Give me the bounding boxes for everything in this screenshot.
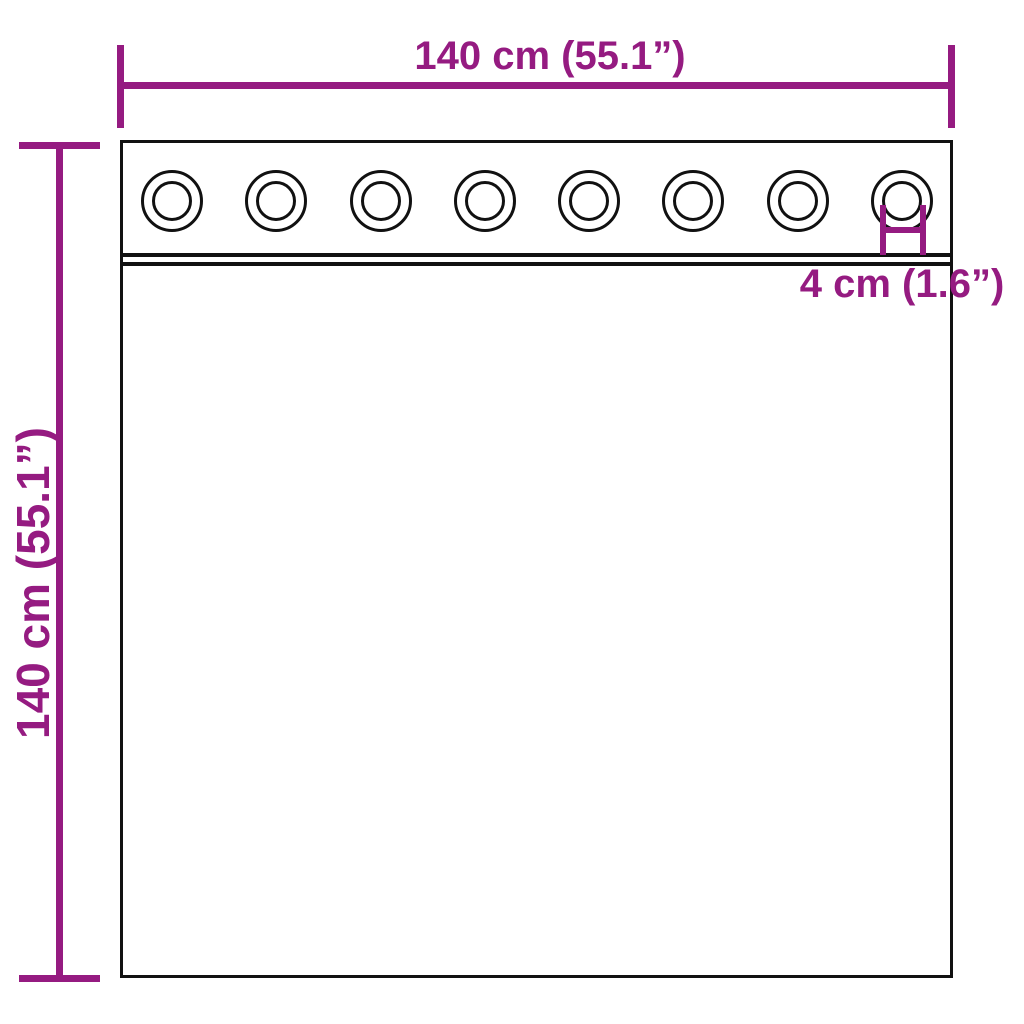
dimension-diagram: 140 cm (55.1”) 140 cm (55.1”) 4 cm (1.6”… xyxy=(0,0,1024,1024)
eyelet-hole xyxy=(882,181,922,221)
eyelet-ring xyxy=(767,170,829,232)
eyelet-ring xyxy=(454,170,516,232)
height-dimension-tick-top xyxy=(19,142,100,149)
eyelet-ring xyxy=(350,170,412,232)
width-dimension-tick-left xyxy=(117,45,124,128)
eyelet-hole xyxy=(152,181,192,221)
width-dimension-line xyxy=(120,82,953,89)
eyelet-ring xyxy=(662,170,724,232)
eyelet-hole xyxy=(778,181,818,221)
eyelet-hole xyxy=(569,181,609,221)
width-dimension-label: 140 cm (55.1”) xyxy=(414,36,685,76)
eyelet-hole xyxy=(256,181,296,221)
eyelet-measure-crossbar xyxy=(880,227,926,233)
width-dimension-tick-right xyxy=(948,45,955,128)
eyelet-hole xyxy=(465,181,505,221)
eyelet-hole xyxy=(673,181,713,221)
eyelet-ring xyxy=(245,170,307,232)
height-dimension-line xyxy=(56,142,63,982)
header-band-line-upper xyxy=(123,253,950,257)
height-dimension-label: 140 cm (55.1”) xyxy=(10,427,56,739)
eyelet-hole xyxy=(361,181,401,221)
eyelet-ring xyxy=(141,170,203,232)
eyelet-ring xyxy=(558,170,620,232)
height-dimension-tick-bottom xyxy=(19,975,100,982)
eyelet-dimension-label: 4 cm (1.6”) xyxy=(800,264,1005,304)
